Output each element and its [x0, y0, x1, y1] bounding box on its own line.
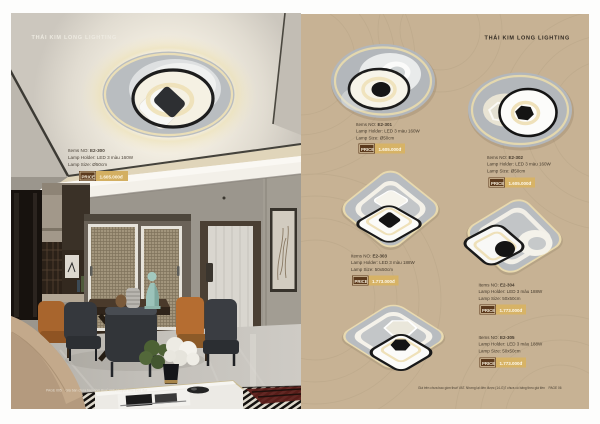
svg-text:PRICE: PRICE: [482, 361, 495, 366]
svg-text:Items NO: E2-305: Items NO: E2-305: [479, 335, 516, 340]
svg-text:1.605.000đ: 1.605.000đ: [100, 174, 123, 179]
svg-text:PAGE 005 Giá bán chưa bao g: PAGE 005 Giá bán chưa bao gồm thuế VAT, …: [46, 389, 147, 393]
svg-text:PRICE: PRICE: [355, 279, 368, 284]
svg-text:1.605.000đ: 1.605.000đ: [509, 181, 532, 186]
svg-text:Lamp Size: 50x50cm: Lamp Size: 50x50cm: [479, 296, 521, 301]
svg-text:Items NO: E2-303: Items NO: E2-303: [351, 254, 388, 259]
svg-text:Lamp Size: Ø50cm: Lamp Size: Ø50cm: [356, 135, 395, 140]
svg-text:Lamp Holder: LED 3 màu 160W: Lamp Holder: LED 3 màu 160W: [68, 155, 134, 160]
svg-text:THÁI KIM LONG LIGHTING: THÁI KIM LONG LIGHTING: [485, 35, 571, 42]
svg-text:Lamp Holder: LED 3 màu 160W: Lamp Holder: LED 3 màu 160W: [487, 162, 552, 167]
svg-text:Lamp Holder: LED 3 màu 188W: Lamp Holder: LED 3 màu 188W: [351, 260, 416, 265]
svg-text:PRICE: PRICE: [82, 174, 95, 179]
svg-text:THÁI KIM LONG LIGHTING: THÁI KIM LONG LIGHTING: [32, 34, 118, 41]
svg-text:Items NO: E2-300: Items NO: E2-300: [68, 148, 105, 153]
svg-text:Lamp Holder: LED 3 màu 160W: Lamp Holder: LED 3 màu 160W: [356, 129, 421, 134]
svg-text:PRICE: PRICE: [482, 308, 495, 313]
svg-text:Lamp Size: 50x50cm: Lamp Size: 50x50cm: [479, 348, 521, 353]
svg-text:Items NO: E2-304: Items NO: E2-304: [479, 283, 516, 288]
svg-text:1.773.000đ: 1.773.000đ: [372, 279, 395, 284]
svg-text:Giá trên chưa bao gồm thuế VAT: Giá trên chưa bao gồm thuế VAT. Nhưng lạ…: [418, 386, 562, 390]
svg-text:1.773.000đ: 1.773.000đ: [500, 308, 523, 313]
svg-text:PRICE: PRICE: [491, 181, 504, 186]
svg-text:PRICE: PRICE: [361, 147, 374, 152]
svg-text:Lamp Holder: LED 3 màu 188W: Lamp Holder: LED 3 màu 188W: [479, 342, 544, 347]
svg-text:1.773.000đ: 1.773.000đ: [500, 361, 523, 366]
svg-text:1.605.000đ: 1.605.000đ: [379, 147, 402, 152]
svg-text:Items NO: E2-302: Items NO: E2-302: [487, 155, 524, 160]
svg-text:Lamp Holder: LED 3 màu 188W: Lamp Holder: LED 3 màu 188W: [479, 289, 544, 294]
svg-text:Items NO: E2-301: Items NO: E2-301: [356, 122, 393, 127]
svg-text:Lamp Size: Ø50cm: Lamp Size: Ø50cm: [68, 162, 107, 167]
svg-text:Lamp Size: 50x50cm: Lamp Size: 50x50cm: [351, 267, 393, 272]
svg-text:Lamp Size: Ø50cm: Lamp Size: Ø50cm: [487, 168, 526, 173]
